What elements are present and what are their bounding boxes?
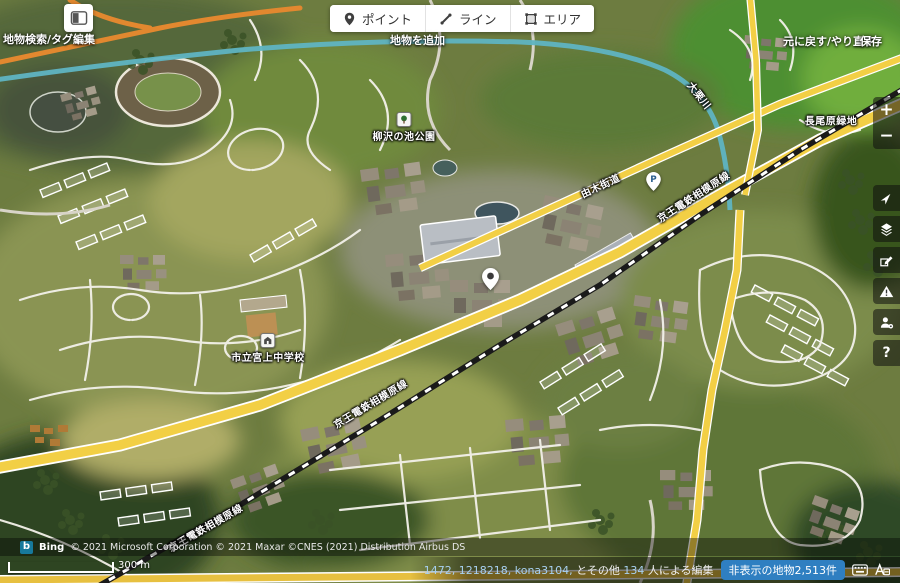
translate-icon[interactable] <box>875 563 890 577</box>
plus-icon: + <box>879 102 893 119</box>
layers-icon <box>879 222 894 237</box>
parking-pin[interactable]: P <box>646 172 661 195</box>
status-bar: 1472, 1218218, kona3104, とその他 134 人による編集… <box>410 557 900 583</box>
zoom-in-button[interactable]: + <box>873 97 900 123</box>
help-icon: ? <box>882 345 890 361</box>
draw-point-label: ポイント <box>362 9 412 28</box>
scale-label: 300 m <box>118 560 150 571</box>
issues-button[interactable] <box>873 278 900 304</box>
add-feature-caption: 地物を追加 <box>390 32 445 48</box>
help-button[interactable]: ? <box>873 340 900 366</box>
editors-others-prefix: とその他 <box>576 564 620 577</box>
user-settings-button[interactable] <box>873 309 900 335</box>
zoom-out-button[interactable]: − <box>873 123 900 149</box>
imagery-attribution: © 2021 Microsoft Corporation © 2021 Maxa… <box>70 542 465 553</box>
scale-bar <box>8 562 114 573</box>
editor-user-link[interactable]: 1218218, <box>459 564 512 577</box>
bing-logo: b <box>20 541 33 554</box>
issues-warning-icon <box>879 284 894 299</box>
map-label-green-space: 長尾原緑地 <box>805 113 858 128</box>
hidden-features-badge[interactable]: 非表示の地物2,513件 <box>721 560 846 580</box>
map-data-button[interactable] <box>873 247 900 273</box>
poi-school[interactable]: 市立宮上中学校 <box>231 333 305 364</box>
geolocate-button[interactable] <box>873 185 900 211</box>
draw-line-label: ライン <box>459 9 497 28</box>
editor-user-link[interactable]: kona3104, <box>515 564 573 577</box>
user-settings-icon <box>879 315 894 330</box>
map-controls: + − <box>873 97 900 149</box>
editor-user-link[interactable]: 1472, <box>424 564 456 577</box>
draw-line-button[interactable]: ライン <box>426 5 511 32</box>
save-caption: 保存 <box>860 33 882 49</box>
map-label-school: 市立宮上中学校 <box>231 349 305 364</box>
editors-others-suffix: 人による編集 <box>648 564 714 577</box>
park-icon <box>397 112 412 127</box>
minus-icon: − <box>879 128 893 145</box>
draw-area-button[interactable]: エリア <box>511 5 595 32</box>
point-pin-icon <box>343 12 356 26</box>
map-data-icon <box>879 253 894 268</box>
sidebar-toggle-icon <box>70 10 88 26</box>
draw-toolbar: ポイント ライン エリア <box>330 5 594 32</box>
imagery-provider: Bing <box>39 542 64 553</box>
selected-point-pin[interactable] <box>482 268 499 294</box>
area-square-icon <box>524 12 538 26</box>
line-pen-icon <box>439 12 453 26</box>
keyboard-shortcuts-icon[interactable] <box>852 564 868 576</box>
satellite-map-canvas[interactable] <box>0 0 900 583</box>
sidebar-caption: 地物検索/タグ編集 <box>3 31 95 47</box>
poi-park[interactable]: 柳沢の池公園 <box>373 112 436 143</box>
draw-area-label: エリア <box>544 9 582 28</box>
attribution-bar: b Bing © 2021 Microsoft Corporation © 20… <box>0 538 900 556</box>
map-editor-screen: 柳沢の池公園 長尾原緑地 市立宮上中学校 京王電鉄相模原線 京王電鉄相模原線 京… <box>0 0 900 583</box>
editors-others-count[interactable]: 134 <box>623 564 644 577</box>
parking-letter: P <box>650 175 657 185</box>
school-icon <box>261 333 276 348</box>
geolocate-arrow-icon <box>879 191 894 206</box>
map-label-park: 柳沢の池公園 <box>373 128 436 143</box>
sidebar-toggle-button[interactable] <box>64 4 93 32</box>
background-layers-button[interactable] <box>873 216 900 242</box>
draw-point-button[interactable]: ポイント <box>330 5 426 32</box>
